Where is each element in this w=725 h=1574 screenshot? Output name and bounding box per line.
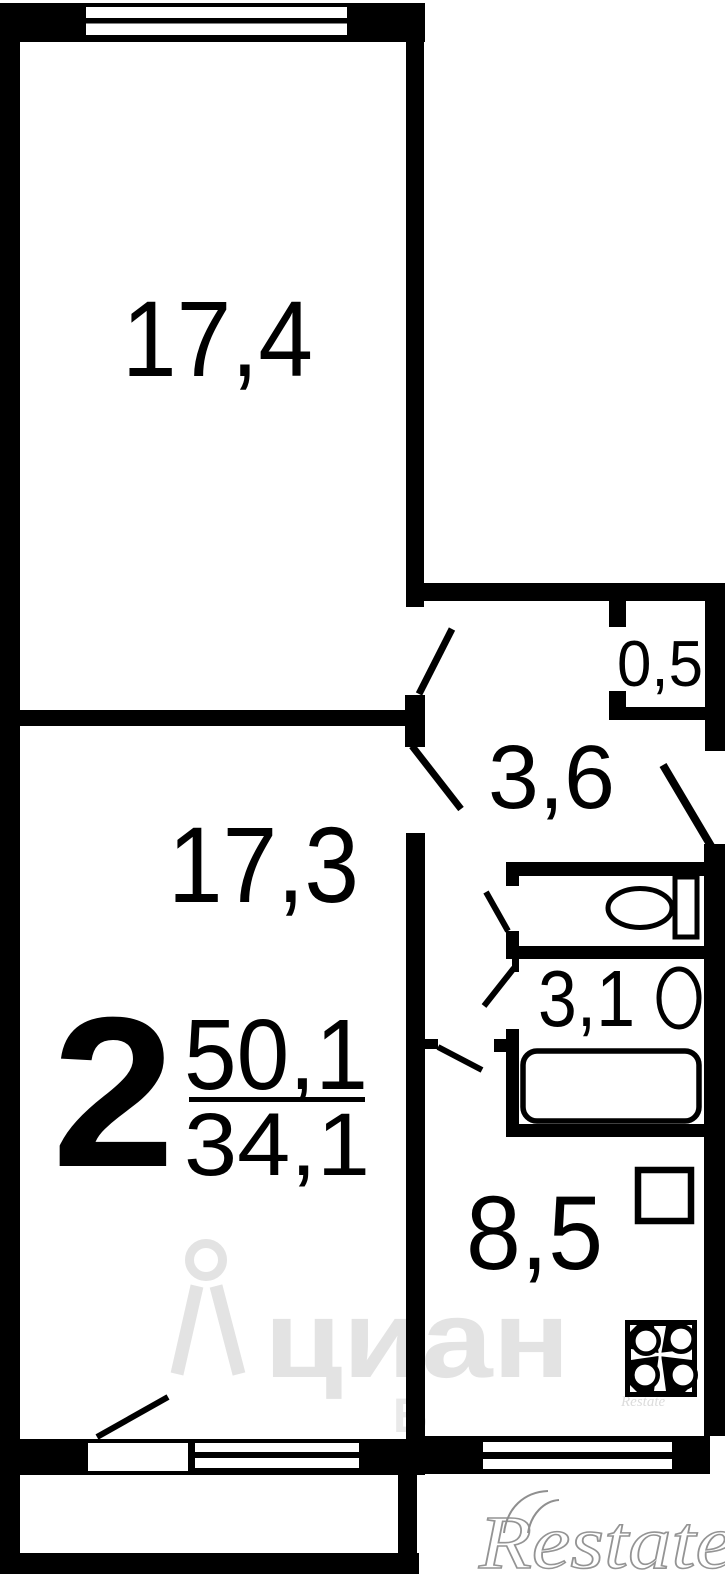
- svg-text:3,6: 3,6: [488, 728, 615, 828]
- svg-text:3,1: 3,1: [538, 954, 635, 1043]
- svg-text:0,5: 0,5: [617, 627, 703, 700]
- svg-text:17,4: 17,4: [122, 278, 313, 399]
- svg-text:Restate: Restate: [478, 1501, 725, 1574]
- svg-text:17,3: 17,3: [168, 804, 359, 925]
- svg-text:8,5: 8,5: [466, 1175, 603, 1292]
- svg-text:34,1: 34,1: [184, 1094, 370, 1194]
- svg-text:2: 2: [52, 973, 175, 1212]
